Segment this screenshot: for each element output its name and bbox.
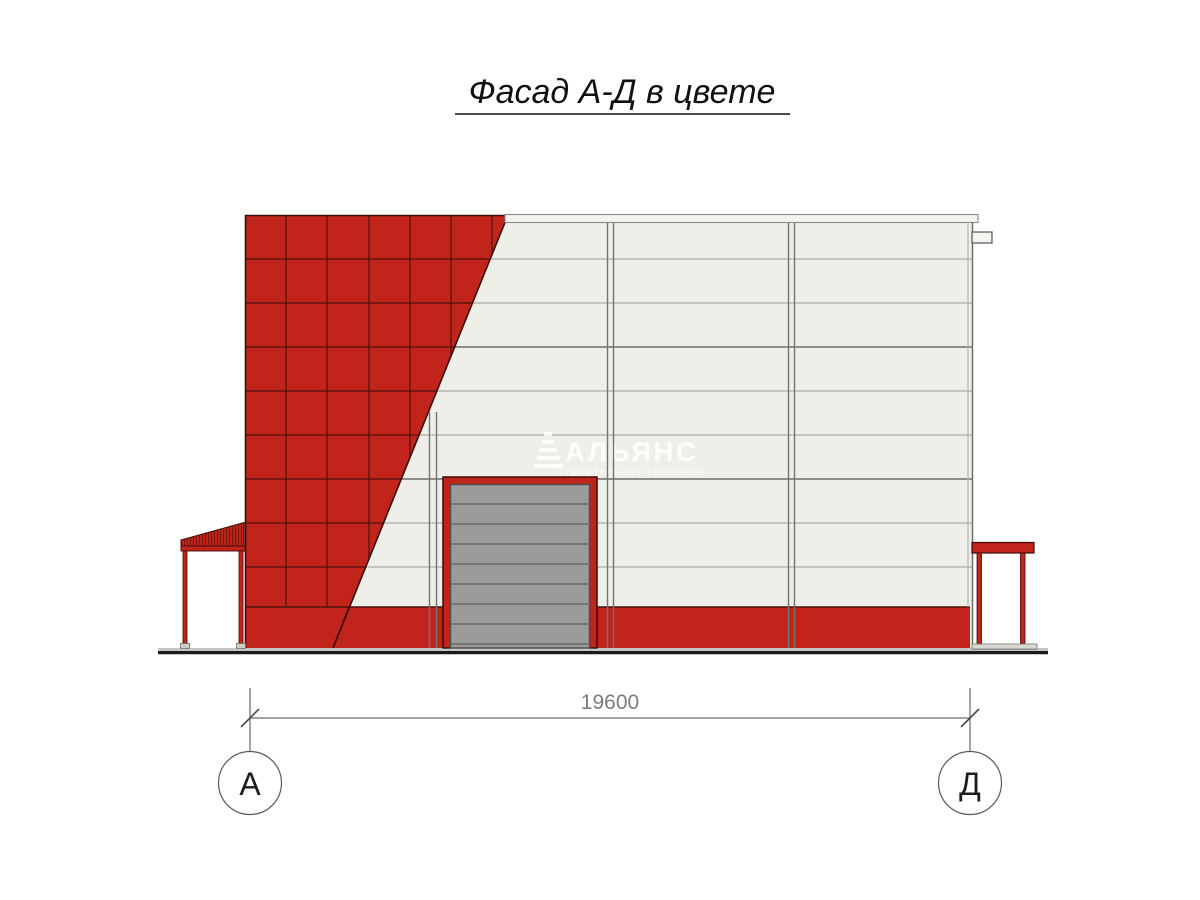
left-canopy-post-base-inner bbox=[237, 644, 246, 649]
axis-marker-d: Д bbox=[939, 752, 1002, 815]
facade-drawing-canvas: Фасад А-Д в цвете АЛЬЯНС bbox=[0, 0, 1200, 900]
drawing-title: Фасад А-Д в цвете bbox=[455, 73, 790, 114]
parapet-cap bbox=[505, 215, 978, 223]
watermark-tagline: строительная компания bbox=[558, 466, 706, 478]
left-canopy-post-inner bbox=[239, 551, 243, 644]
garage-door bbox=[443, 477, 597, 648]
watermark-name: АЛЬЯНС bbox=[565, 437, 699, 467]
page-title: Фасад А-Д в цвете bbox=[469, 73, 776, 111]
building-elevation: АЛЬЯНС строительная компания bbox=[245, 215, 992, 649]
facade-drawing-page: Фасад А-Д в цвете АЛЬЯНС bbox=[0, 0, 1200, 900]
dimension-value: 19600 bbox=[581, 691, 639, 714]
right-canopy-post-inner bbox=[977, 553, 982, 644]
wall-outlet-bracket bbox=[972, 232, 992, 243]
right-canopy-post-outer bbox=[1021, 553, 1026, 644]
axis-label-a: А bbox=[239, 766, 261, 802]
left-canopy-post-base-outer bbox=[181, 644, 190, 649]
left-canopy-fascia bbox=[181, 546, 245, 551]
axis-marker-a: А bbox=[219, 752, 282, 815]
axis-label-d: Д bbox=[959, 766, 981, 802]
left-canopy-post-outer bbox=[183, 551, 187, 644]
right-canopy-beam bbox=[972, 543, 1034, 554]
